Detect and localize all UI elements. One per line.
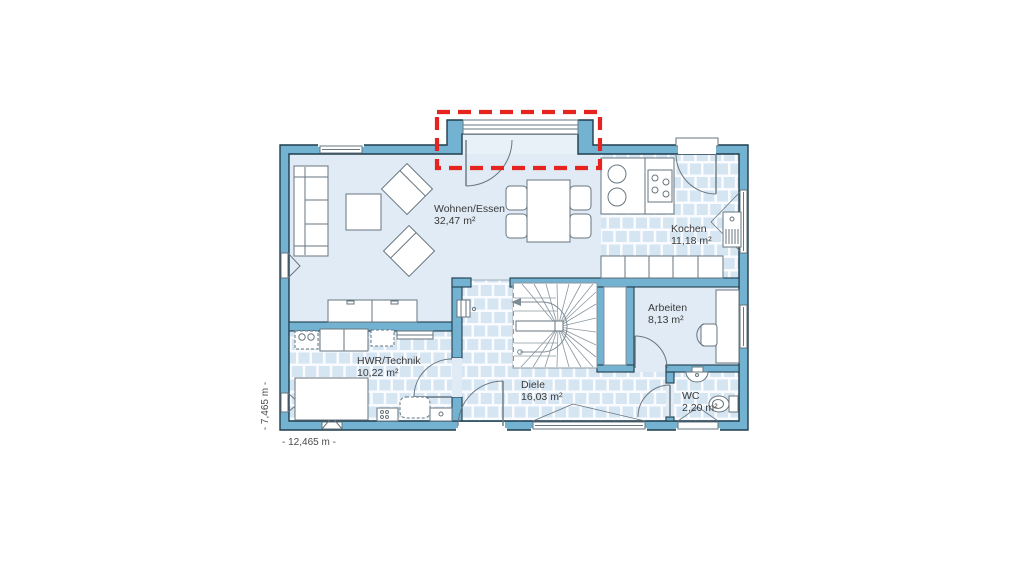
floor-plan-canvas: Wohnen/Essen 32,47 m² Kochen 11,18 m² Ar… bbox=[0, 0, 1024, 561]
label-office-area: 8,13 m² bbox=[648, 314, 684, 326]
cooktop-icon bbox=[648, 170, 672, 202]
kitchen-radiator bbox=[723, 212, 741, 247]
sofa bbox=[294, 166, 328, 256]
desk bbox=[716, 290, 739, 363]
installation-shaft bbox=[604, 287, 626, 365]
wall-living-hall-lower bbox=[452, 397, 462, 421]
label-utility-area: 10,22 m² bbox=[357, 367, 399, 379]
wall-living-hall-upper bbox=[452, 278, 462, 358]
appliance-optional bbox=[371, 330, 394, 346]
sideboard bbox=[328, 300, 417, 322]
hall-corridor-floor bbox=[597, 372, 666, 421]
staircase bbox=[511, 283, 597, 368]
dining-chair bbox=[570, 186, 591, 210]
label-kitchen: Kochen bbox=[671, 223, 707, 235]
dimension-height: - 7,465 m - bbox=[260, 382, 271, 430]
label-living-dining: Wohnen/Essen bbox=[434, 203, 505, 215]
kitchen-counter bbox=[601, 158, 674, 214]
kitchen-door-sill bbox=[676, 138, 718, 146]
terrace-niche-floor bbox=[462, 134, 578, 154]
wall-shaft-left bbox=[597, 287, 604, 372]
heating-unit bbox=[295, 378, 368, 420]
terrace-sliding-door bbox=[463, 120, 578, 134]
dining-chair bbox=[506, 186, 527, 210]
wall-shaft-right bbox=[626, 287, 634, 372]
utility-shelf bbox=[397, 331, 433, 339]
label-living-dining-area: 32,47 m² bbox=[434, 215, 476, 227]
floor-plan-drawing: Wohnen/Essen 32,47 m² Kochen 11,18 m² Ar… bbox=[0, 0, 1024, 561]
label-hall-area: 16,03 m² bbox=[521, 391, 563, 403]
dining-chair bbox=[570, 214, 591, 238]
hall-passage-floor bbox=[471, 280, 510, 287]
kitchen-base-cabinets bbox=[601, 256, 723, 278]
sink-basin-icon bbox=[608, 165, 626, 183]
boiler-optional bbox=[400, 397, 430, 418]
living-window-top bbox=[320, 146, 362, 153]
wall-passage-left-cap bbox=[452, 278, 471, 287]
label-office: Arbeiten bbox=[648, 302, 687, 314]
label-hall: Diele bbox=[521, 379, 545, 391]
label-wc: WC bbox=[682, 390, 700, 402]
dining-chair bbox=[506, 214, 527, 238]
label-wc-area: 2,20 m² bbox=[682, 402, 718, 414]
sink-basin-icon bbox=[608, 188, 626, 206]
washing-machine bbox=[295, 331, 318, 349]
wall-wc-left-upper bbox=[666, 372, 674, 383]
utility-table bbox=[320, 329, 368, 351]
label-utility: HWR/Technik bbox=[357, 355, 421, 367]
wall-office-bottom-left bbox=[597, 365, 634, 372]
dimension-width: - 12,465 m - bbox=[282, 437, 336, 448]
coffee-table bbox=[346, 194, 381, 230]
label-kitchen-area: 11,18 m² bbox=[671, 235, 712, 247]
wall-wc-left-lower bbox=[666, 417, 674, 421]
